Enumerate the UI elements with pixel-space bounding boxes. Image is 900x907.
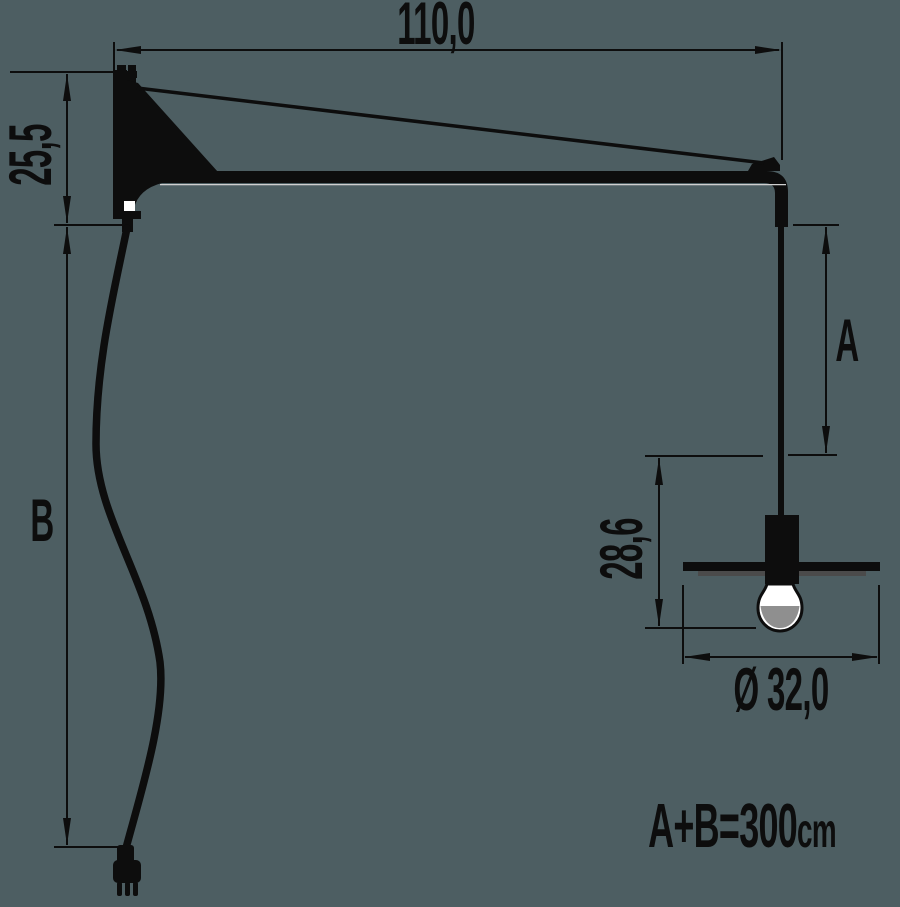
formula-value: A+B=300 [648, 792, 797, 861]
arrowhead-up [655, 458, 663, 485]
shade-diameter-label: Ø 32,0 [733, 660, 828, 720]
head-height-label: 28,6 [592, 518, 652, 580]
arrowhead-left [115, 46, 141, 54]
lamp-socket [765, 515, 799, 584]
total-length-formula: A+B=300cm [648, 796, 836, 858]
tension-cable [137, 88, 764, 163]
power-plug [113, 845, 141, 896]
wall-plate [113, 70, 127, 218]
drop-rod [778, 227, 784, 517]
arrowhead-up [63, 227, 71, 254]
arm-length-label: 110,0 [397, 0, 474, 54]
arrowhead-down [822, 426, 830, 453]
arrowhead-down [63, 818, 71, 845]
power-cord [96, 228, 161, 848]
arm-bar [127, 171, 767, 183]
technical-drawing: 110,0 25,5 B A 28,6 Ø 32,0 A+B=300cm [0, 0, 900, 907]
top-pin [117, 65, 126, 72]
arrowhead-left [684, 653, 710, 661]
arrowhead-up [822, 227, 830, 254]
arrowhead-right [755, 46, 781, 54]
top-pin [128, 65, 136, 74]
formula-unit: cm [797, 805, 836, 858]
dim-arm-length [114, 42, 782, 160]
plug-prong [117, 882, 122, 896]
cord-b-label: B [30, 491, 53, 551]
lamp-head [683, 515, 880, 631]
arm-bend [764, 171, 788, 227]
arrowhead-up [63, 74, 71, 101]
arrowhead-right [852, 653, 878, 661]
arrowhead-down [63, 196, 71, 223]
arrowhead-down [655, 599, 663, 626]
swing-arm [127, 157, 788, 517]
plug-prong [133, 882, 138, 896]
plug-prong [125, 882, 130, 896]
plate-height-label: 25,5 [1, 124, 61, 186]
drop-a-label: A [835, 311, 858, 371]
dim-head-height [645, 456, 763, 628]
dim-drop-a [788, 225, 839, 455]
plug-body [113, 860, 141, 883]
drawing-canvas [0, 0, 900, 907]
cable-clamp [748, 157, 780, 171]
mounting-hole [124, 201, 135, 211]
plate-bottom-cap [113, 211, 141, 219]
